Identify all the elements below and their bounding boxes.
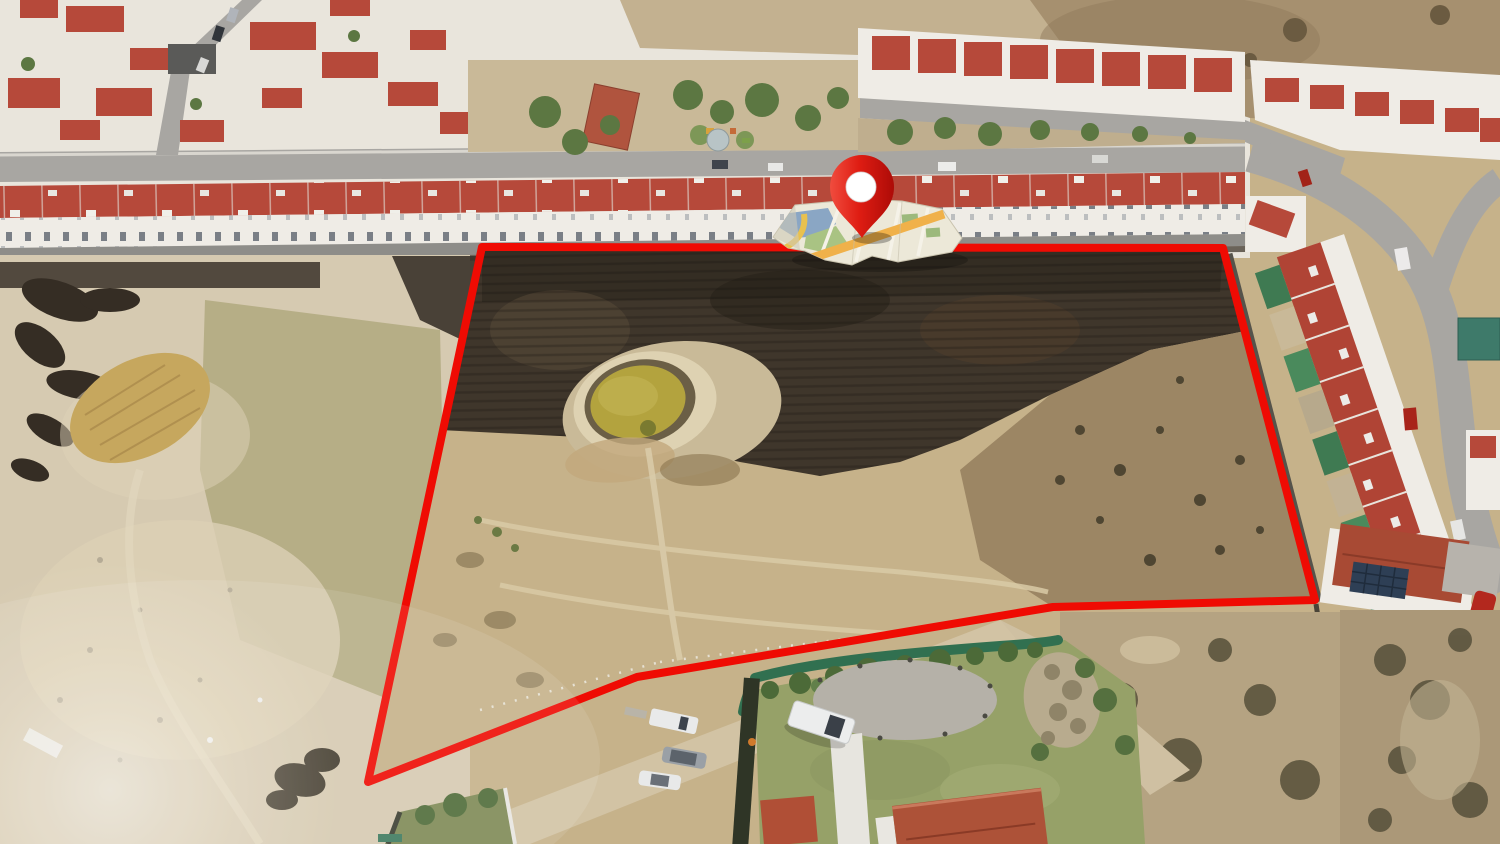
orange-cone xyxy=(748,738,756,746)
driveway-right xyxy=(1442,541,1500,598)
algae xyxy=(640,420,656,436)
pin-shadow xyxy=(852,232,892,244)
scrub-bottom-right xyxy=(1340,610,1500,844)
teal-carport-roof xyxy=(1458,318,1500,360)
aerial-photo-canvas xyxy=(0,0,1500,844)
red-car-on-street xyxy=(1403,407,1418,430)
lawn-property xyxy=(732,640,1145,844)
pond-highlight xyxy=(598,376,658,416)
park-ground xyxy=(468,60,860,152)
dark-modern-roof xyxy=(168,44,216,74)
small-red-roof xyxy=(760,796,818,844)
park xyxy=(468,60,860,155)
aerial-photo xyxy=(0,0,1500,844)
gazebo-dome xyxy=(707,129,729,151)
